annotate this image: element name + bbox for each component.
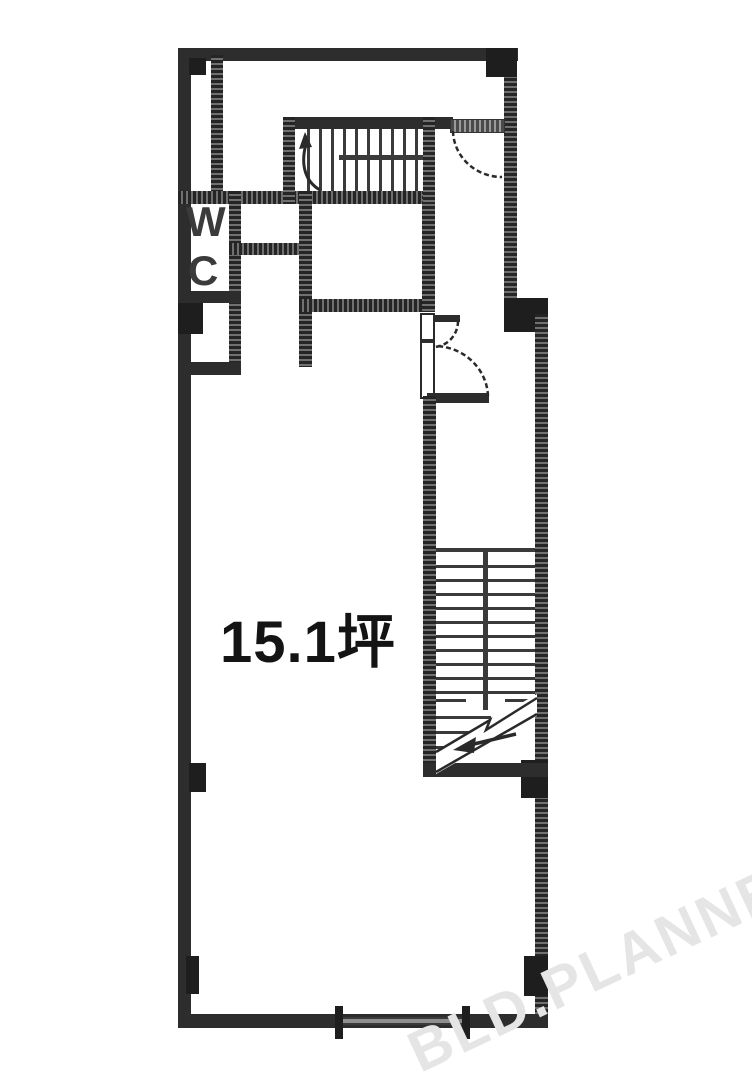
wall-left-shaft [211, 55, 223, 195]
inner-door-frame [420, 313, 435, 399]
pillar-left-middle [189, 763, 206, 792]
wall-outer-right-upper [504, 48, 517, 314]
lower-stair-arrow [474, 734, 516, 744]
wall-stairbox-left [283, 117, 295, 204]
lower-stair-half-step-left [436, 699, 466, 702]
window-mullion-left [335, 1006, 343, 1039]
inner-door-arc [434, 346, 488, 396]
area-label: 15.1坪 [220, 614, 396, 672]
upper-stair-step [331, 129, 334, 191]
pillar-top-right [486, 48, 517, 77]
inner-door-leaf [427, 393, 489, 403]
pillar-top-left [189, 58, 206, 75]
watermark: BLD.PLANNER [398, 836, 752, 1080]
lower-stair-step [436, 746, 464, 749]
inner-door-small-arc [434, 321, 458, 347]
lower-stair-arrow-head [453, 737, 476, 753]
upper-stair-step [415, 129, 418, 191]
wall-lower-stair-bottom [423, 763, 548, 777]
lower-stair-half-step-right [505, 699, 535, 702]
upper-stair-step [355, 129, 358, 191]
wall-pipe-space-bottom [184, 362, 241, 375]
upper-stair-divider [339, 155, 423, 160]
upper-stair-step [379, 129, 382, 191]
wc-label-c: C [188, 250, 218, 292]
wall-outer-top [178, 48, 518, 61]
pillar-pipe-space [178, 303, 203, 334]
pillar-left-bottom [186, 956, 199, 994]
entrance-door-leaf [450, 119, 505, 133]
wall-wc-right [229, 191, 241, 375]
upper-stair-step [367, 129, 370, 191]
wall-shaftroom-bottom [299, 299, 435, 312]
wc-label-w: W [186, 201, 226, 243]
inner-door-small-leaf [433, 315, 460, 322]
upper-stair-step [403, 129, 406, 191]
inner-door-frame-tick [420, 339, 435, 343]
wall-stairbox-right [423, 117, 435, 204]
upper-stair-arrow-head [299, 132, 312, 149]
entrance-door-arc [453, 131, 502, 177]
upper-stair-step [391, 129, 394, 191]
wall-landing-left [423, 396, 436, 768]
floor-plan-canvas: W C 15.1坪 BLD.PLANNER [0, 0, 752, 1080]
lower-stair-step [436, 731, 476, 734]
lower-stair-step [436, 716, 491, 719]
upper-stair-step [319, 129, 322, 191]
lower-stair-divider [483, 548, 488, 710]
upper-stair-step [307, 129, 310, 191]
upper-stair-step [343, 129, 346, 191]
wall-outer-right-lower [535, 314, 548, 1028]
wall-shaftroom-right [422, 191, 435, 312]
wall-shaftroom-left [299, 191, 312, 367]
